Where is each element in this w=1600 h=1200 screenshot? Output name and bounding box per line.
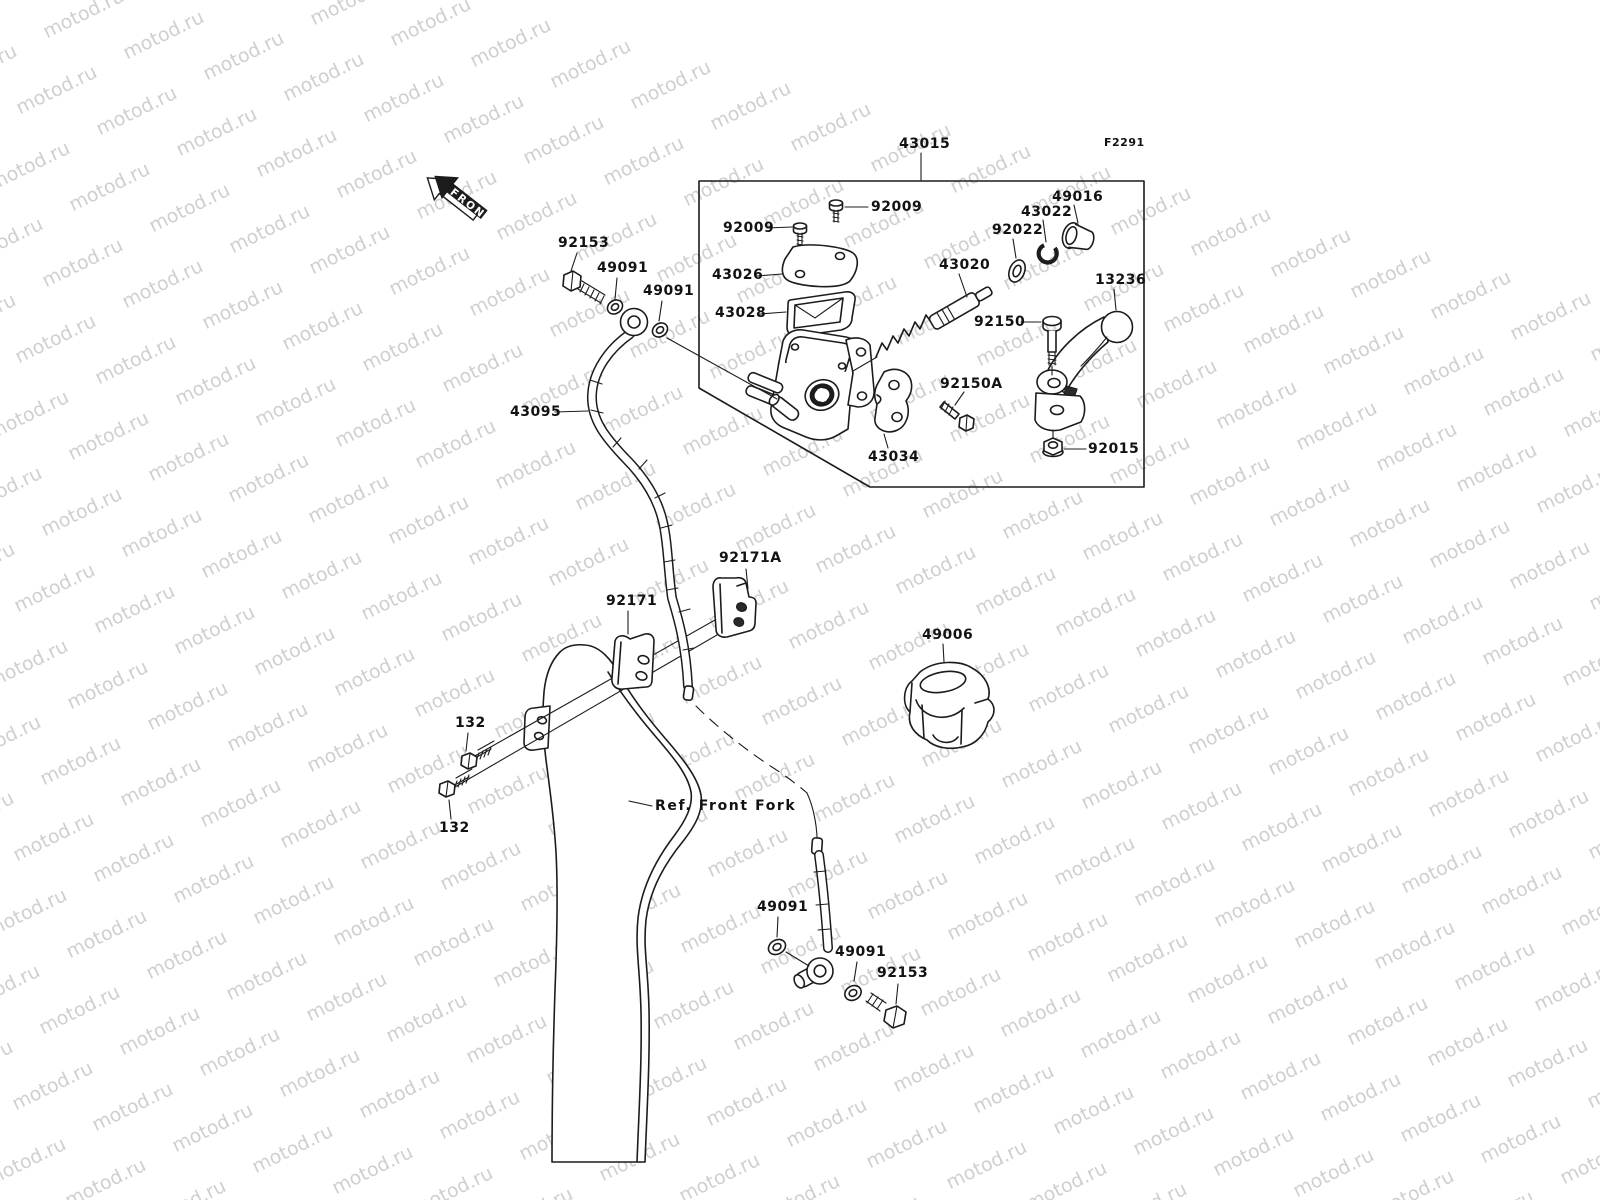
part-label-132: 132 [439,820,470,836]
part-label-43095: 43095 [510,404,561,420]
part-label-92171: 92171 [606,593,657,609]
part-label-ref-front-fork: Ref. Front Fork [655,798,796,814]
part-label-92153: 92153 [877,965,928,981]
part-label-43015: 43015 [899,136,950,152]
part-label-92150a: 92150A [940,376,1003,392]
part-label-49016: 49016 [1052,189,1103,205]
part-label-f2291: F2291 [1104,136,1145,149]
part-label-92150: 92150 [974,314,1025,330]
part-label-92153: 92153 [558,235,609,251]
part-label-92015: 92015 [1088,441,1139,457]
part-label-49091: 49091 [643,283,694,299]
part-label-43034: 43034 [868,449,919,465]
part-label-49091: 49091 [835,944,886,960]
part-label-92009: 92009 [723,220,774,236]
part-label-49091: 49091 [597,260,648,276]
part-label-43020: 43020 [939,257,990,273]
parts-diagram-page: motod.rumotod.rumotod.rumotod.rumotod.ru… [0,0,1600,1200]
part-label-92022: 92022 [992,222,1043,238]
part-label-43028: 43028 [715,305,766,321]
part-label-43026: 43026 [712,267,763,283]
part-label-49006: 49006 [922,627,973,643]
part-label-92009: 92009 [871,199,922,215]
part-label-layer: 43015F2291920099200943026430289215349091… [0,0,1600,1200]
part-label-49091: 49091 [757,899,808,915]
part-label-13236: 13236 [1095,272,1146,288]
part-label-92171a: 92171A [719,550,782,566]
part-label-132: 132 [455,715,486,731]
part-label-43022: 43022 [1021,204,1072,220]
